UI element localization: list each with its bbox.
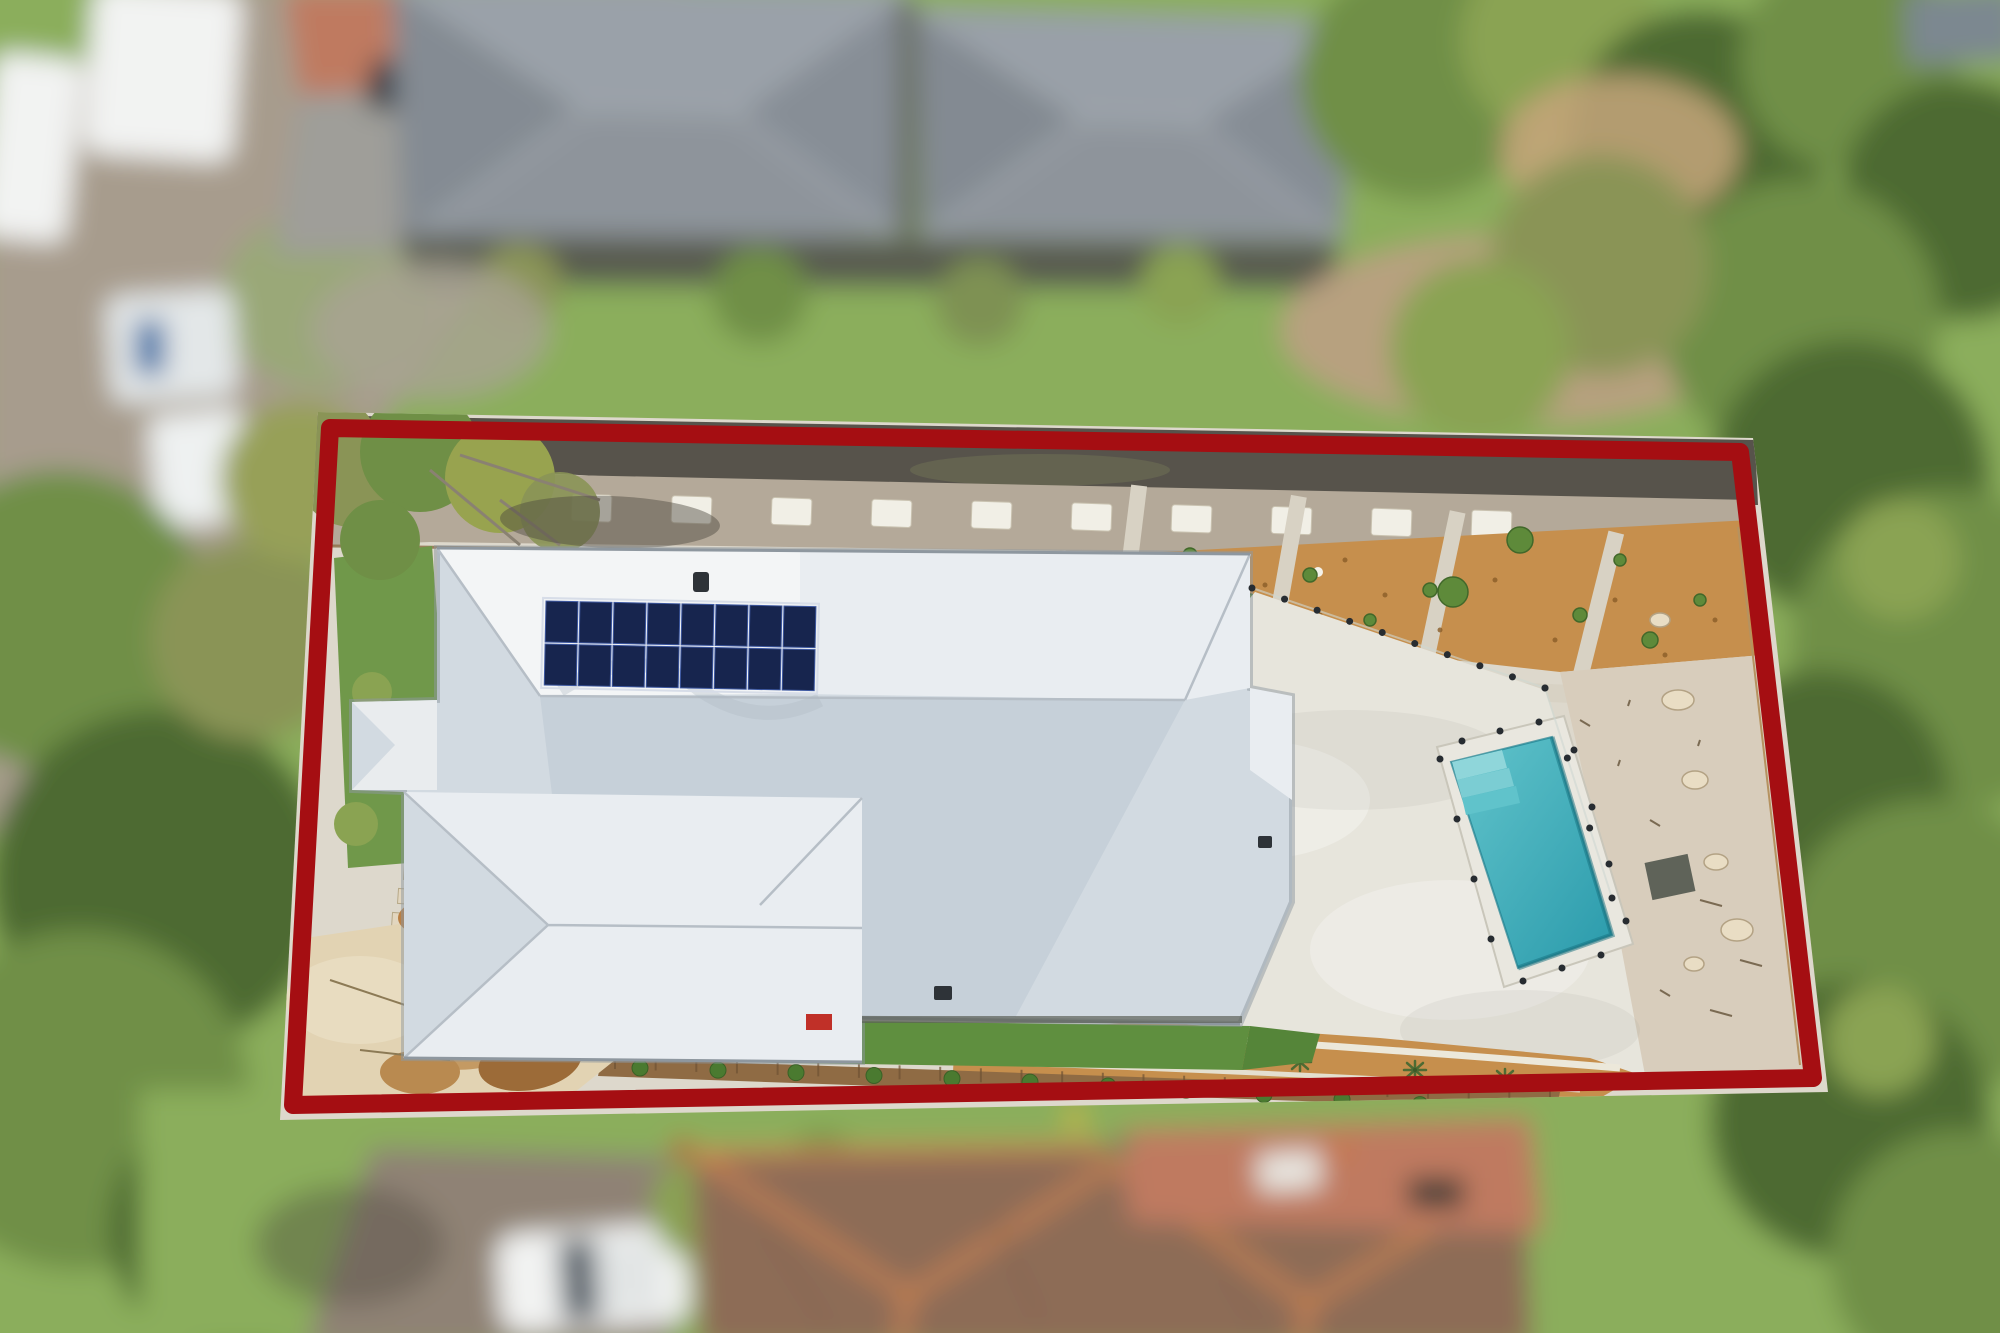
solar-panel [749, 605, 782, 647]
tree [1825, 985, 1935, 1095]
fence-post [1598, 952, 1605, 959]
tree-shadow [255, 1185, 445, 1305]
solar-panel [612, 645, 645, 687]
garden-plant [1438, 577, 1468, 607]
stepping-stone [1171, 505, 1212, 533]
solar-panel [544, 644, 577, 686]
property-sharp-area [250, 380, 1870, 1140]
neighbour-house-right [916, 8, 1352, 240]
mulch-speckle [1438, 628, 1443, 633]
garden-plant [1303, 568, 1317, 582]
rock [1684, 957, 1704, 971]
eave-shadow [862, 1016, 1242, 1023]
garden-plant [1573, 608, 1587, 622]
mulch-speckle [1263, 583, 1268, 588]
mulch-speckle [1553, 638, 1558, 643]
stepping-stone [771, 497, 812, 525]
shrub [710, 1062, 726, 1078]
bbq-grill [1408, 1178, 1464, 1208]
fence-post [1542, 685, 1549, 692]
fence-post [1589, 804, 1596, 811]
bush [936, 258, 1024, 346]
neighbour-house-left [392, 0, 908, 246]
solar-panel [646, 646, 679, 688]
fence-post [1379, 629, 1386, 636]
car-windshield [557, 1238, 601, 1322]
fence-post [1476, 662, 1483, 669]
fence-post [1520, 978, 1527, 985]
solar-panel [714, 648, 747, 690]
palm-center [1413, 1068, 1417, 1072]
garden-plant [1364, 614, 1376, 626]
shrub [866, 1068, 882, 1084]
courtyard-tiles [1120, 1118, 1542, 1232]
fence-post [1437, 756, 1444, 763]
fence-post [1509, 673, 1516, 680]
shrub [788, 1065, 804, 1081]
garden-plant [1507, 527, 1533, 553]
fence-post [1571, 747, 1578, 754]
garden-plant [1694, 594, 1706, 606]
moss-patch [910, 454, 1170, 486]
mulch-speckle [1713, 618, 1718, 623]
bush [712, 247, 808, 343]
rock [1662, 690, 1694, 710]
roof-facet-top-right [800, 551, 1250, 700]
fence-post [1411, 640, 1418, 647]
mulch-speckle [1493, 578, 1498, 583]
car-window [135, 320, 165, 375]
roof-vent [693, 572, 709, 592]
solar-panel [578, 645, 611, 687]
aerial-photo [0, 0, 2000, 1333]
solar-panel [782, 649, 815, 691]
garden-plant [1423, 583, 1437, 597]
fence-post [1249, 585, 1256, 592]
stepping-stone [1071, 503, 1112, 531]
moss-patch [1340, 468, 1560, 496]
stepping-stone [971, 501, 1012, 529]
fence-post [1564, 755, 1571, 762]
solar-panel [748, 648, 781, 690]
tree [1840, 500, 1960, 620]
aerial-photo-stage [0, 0, 2000, 1333]
bush [334, 802, 378, 846]
fence-post [1314, 607, 1321, 614]
far-shed-roof [1903, 0, 2000, 65]
fence-post [1586, 825, 1593, 832]
solar-panel [681, 604, 714, 646]
house [352, 548, 1292, 1062]
garden-plant [1642, 632, 1658, 648]
green-object [1109, 1137, 1127, 1155]
roof-vent [1258, 836, 1272, 848]
garden-plant [1614, 554, 1626, 566]
rock [1650, 613, 1670, 627]
rock [1704, 854, 1728, 870]
solar-panel [613, 602, 646, 644]
mulch-speckle [1383, 593, 1388, 598]
stepping-stone [1371, 508, 1412, 536]
fence-post [1497, 728, 1504, 735]
white-ute [82, 0, 244, 163]
fence-post [1488, 936, 1495, 943]
fence-post [1454, 816, 1461, 823]
fence-post [1623, 918, 1630, 925]
fence-post [1606, 861, 1613, 868]
red-door-feature [806, 1014, 832, 1030]
car-roof [599, 1237, 662, 1315]
fence-post [1536, 719, 1543, 726]
house-gap-shadow [898, 0, 918, 238]
solar-panel [647, 603, 680, 645]
solar-panel [715, 605, 748, 647]
fence-post [1444, 651, 1451, 658]
roof-vent [934, 986, 952, 1000]
fence-post [1459, 738, 1466, 745]
fence-post [1609, 895, 1616, 902]
tree [1390, 260, 1570, 440]
mulch-speckle [1343, 558, 1348, 563]
rock [1721, 919, 1753, 941]
courtyard [1109, 1118, 1542, 1232]
yellow-object [1065, 1108, 1085, 1128]
mulch-speckle [1663, 653, 1668, 658]
fence-post [1346, 618, 1353, 625]
mulch-speckle [1613, 598, 1618, 603]
white-table [1257, 1150, 1321, 1192]
stepping-stone [871, 499, 912, 527]
fence-post [1559, 965, 1566, 972]
fence-post [1281, 596, 1288, 603]
orange-object [1334, 1142, 1350, 1158]
solar-panel [783, 606, 816, 648]
solar-panel [579, 602, 612, 644]
bush [1140, 245, 1220, 325]
tree [340, 500, 420, 580]
solar-panel [545, 601, 578, 643]
solar-panel [680, 647, 713, 689]
pale-yard-patch [310, 260, 550, 400]
white-car [104, 288, 239, 405]
rock [1682, 771, 1708, 789]
fence-post [1471, 876, 1478, 883]
